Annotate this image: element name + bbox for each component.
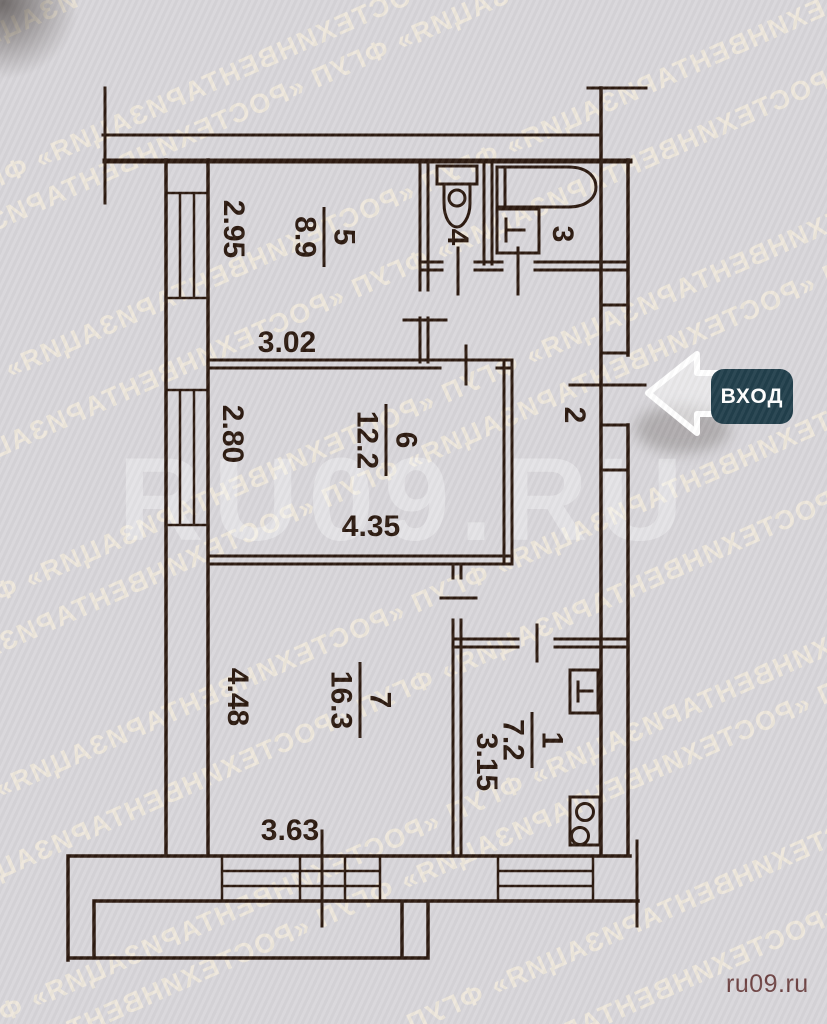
entrance-arrow-layer (0, 0, 827, 1024)
entrance-badge-label: ВХОД (721, 385, 784, 409)
floor-plan-page: ФГУП «РОСТЕХИНВЕНТАРИЗАЦИЯ» ФГУП «РОСТЕХ… (0, 0, 827, 1024)
entrance-badge: ВХОД (711, 369, 793, 424)
site-label: ru09.ru (726, 970, 809, 999)
